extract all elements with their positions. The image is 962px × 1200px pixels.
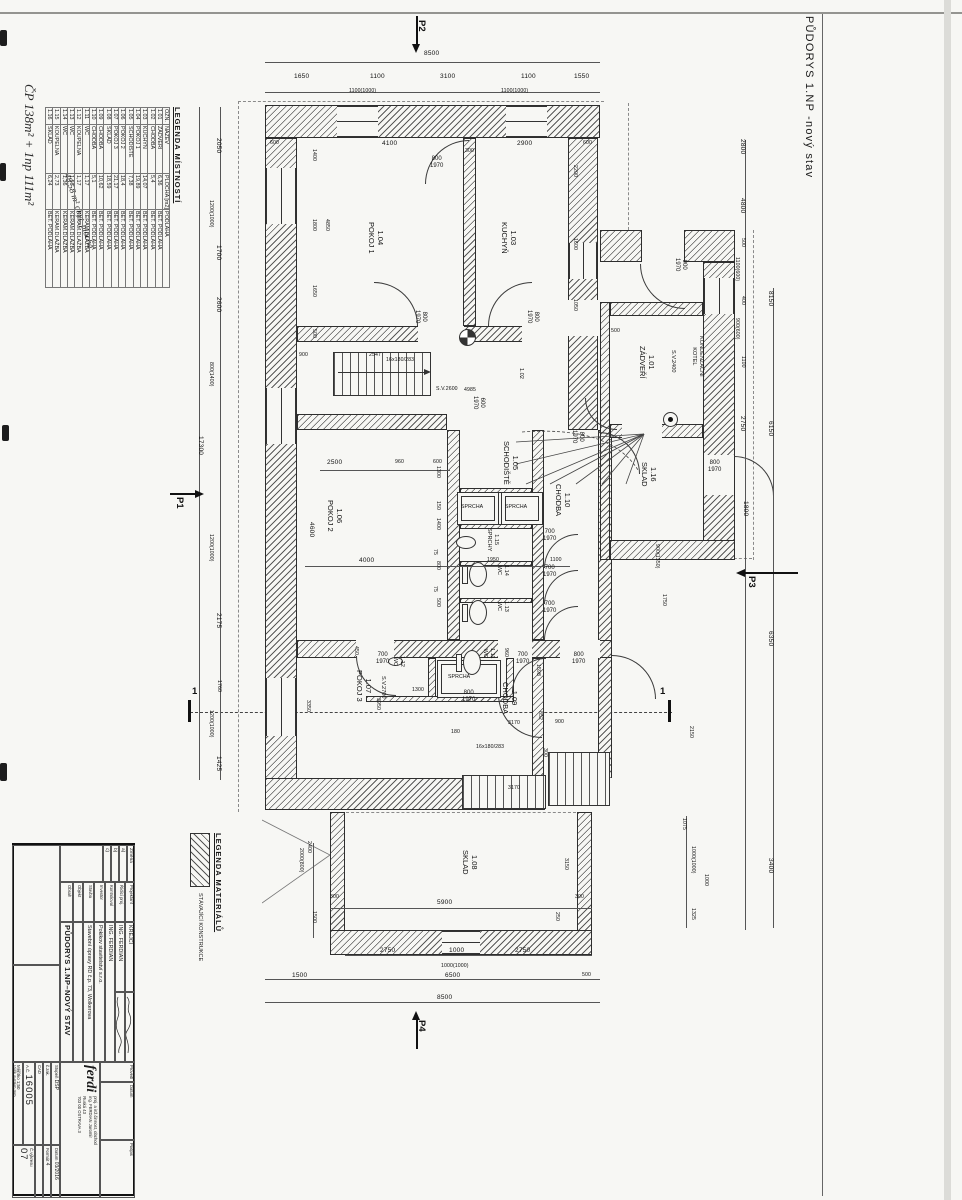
- door-size-label: 800 1970: [413, 310, 427, 323]
- dashed-outline: [238, 101, 239, 812]
- wall: [568, 138, 598, 430]
- wall: [447, 430, 460, 640]
- dim-label: 1100: [370, 73, 385, 80]
- door-size-label: 700 1970: [516, 652, 529, 666]
- legend-cell: 18,59: [104, 174, 111, 210]
- dim-label: 900(600): [734, 318, 740, 340]
- dim-label: 1300: [435, 466, 441, 478]
- page-edge-shade: [944, 0, 951, 1200]
- toilet: [469, 600, 487, 625]
- door-arc: [612, 655, 656, 699]
- dim-label: 300: [542, 748, 548, 757]
- legend-cell: 1.03: [141, 108, 148, 125]
- dim-label: 600: [270, 140, 279, 146]
- dim-label: 8500: [437, 994, 452, 1001]
- legend-cell: KERAM.DLAŽBA: [53, 210, 60, 288]
- section-arrowhead-p3: [736, 569, 745, 577]
- vysky-value: mm: [12, 1090, 17, 1097]
- dim-label: 1650: [294, 73, 309, 80]
- room-label-1-15: 1.15 SPRCHY: [486, 528, 499, 551]
- sheet-title-block: PŮDORYS 1.NP -nový stav: [797, 16, 819, 180]
- dim-label: 1800: [311, 219, 317, 231]
- dim-label: 900: [555, 719, 564, 725]
- legend-cell: 1.02: [148, 108, 155, 125]
- dim-label: 1100: [521, 73, 536, 80]
- dim-label: 2000(800): [298, 848, 304, 873]
- dim-label: 1500: [311, 911, 317, 923]
- stupen-label: Stupeň: [54, 1065, 59, 1078]
- legend-cell: CHODBA: [148, 125, 155, 174]
- investor-value: Pokikov stavitelství s.r.o.: [97, 925, 103, 1059]
- ridici-value: ING. FERDIAN: [117, 925, 123, 989]
- door-arc: [734, 456, 774, 496]
- legend-cell: SKLAD: [46, 125, 53, 174]
- shower-label: SPRCHA: [461, 504, 483, 510]
- dim-label: 1200(1000): [208, 200, 214, 228]
- section-mark-p2: P2: [416, 20, 427, 32]
- firm-line1: proj. a inž.činnost, obchod: [93, 1096, 98, 1145]
- legend-cell: POKOJ 2: [119, 125, 126, 174]
- legend-cell: 1.07: [111, 108, 118, 125]
- section-mark-1: 1: [192, 686, 197, 697]
- legend-cell: 1,56: [67, 174, 74, 210]
- stair-flight: [333, 352, 431, 396]
- legend-cell: 1.11: [82, 108, 89, 125]
- legend-row: 1.12KOUPELNA1,17KERAM.DLAŽBA: [75, 108, 82, 288]
- legend-cell: SCHODIŠTĚ: [126, 125, 133, 174]
- dim-label: 150: [435, 501, 441, 510]
- frame-line: [822, 14, 823, 1196]
- title-block: Změna a) b) c) Projektant KREJČÍ Řídící …: [12, 843, 135, 1196]
- legend-row: 1.13WC1,56KERAM.DLAŽBA: [67, 108, 74, 288]
- dashed-outline: [628, 103, 629, 230]
- legend-cell: 1.16: [46, 108, 53, 125]
- legend-cell: 1.12: [75, 108, 82, 125]
- dim-label: 2800: [739, 139, 746, 154]
- dim-label: 1400: [435, 518, 441, 530]
- legend-row: 1.14WC1,36KERAM.DLAŽBA: [60, 108, 67, 288]
- ridici-label: Řídící proj.: [118, 885, 123, 919]
- legend-cell: 5,4: [148, 174, 155, 210]
- dim-label: 6350: [767, 631, 774, 646]
- toilet: [462, 604, 468, 622]
- dim-label: 3100: [440, 73, 455, 80]
- legend-cell: 1.13: [67, 108, 74, 125]
- door-size-label: 600 1970: [471, 396, 485, 409]
- stair-arrow: [424, 369, 431, 375]
- section-tick-1: [188, 700, 191, 722]
- shower-label: SPRCHA: [505, 504, 527, 510]
- dim-label: 500: [435, 598, 441, 607]
- legend-row: 1.05SCHODIŠTĚ7,38BET. PODLAHA: [126, 108, 133, 288]
- stair-walkline: [338, 372, 426, 373]
- legend-row: 1.06POKOJ 218,4BET. PODLAHA: [119, 108, 126, 288]
- hatch-swatch: [190, 833, 210, 887]
- boiler-symbol-dot: [668, 417, 673, 422]
- dim-label: 1200(1000): [208, 710, 214, 738]
- dim-label: 3170: [508, 720, 520, 726]
- podpis-label: Podpis: [128, 1143, 133, 1195]
- room-legend-title: LEGENDA MÍSTNOSTÍ: [170, 107, 182, 287]
- stupen-value: DSP: [53, 1080, 59, 1090]
- dim-label: 1650: [311, 285, 317, 297]
- legend-header: OZN.: [163, 108, 170, 125]
- legend-cell: 18,4: [119, 174, 126, 210]
- dim-label: 1600: [572, 238, 578, 250]
- dim-label: 1075: [681, 818, 687, 830]
- dim-line: [320, 470, 450, 471]
- dim-line: [686, 816, 687, 928]
- room-label-1-05: 1.05 SCHODIŠTĚ: [501, 441, 520, 485]
- datum2-value: 03/2016: [53, 1162, 59, 1180]
- dim-label: 400: [740, 296, 746, 305]
- door-size-label: 800 1970: [570, 430, 584, 443]
- dim-label: 4850: [324, 219, 330, 231]
- door-size-label: 700 1970: [543, 529, 556, 543]
- scan-edge-line: [0, 12, 962, 14]
- dim-label: 960: [503, 648, 509, 657]
- dashed-outline: [346, 812, 576, 813]
- room-label-1-10: 1.10 CHODBA: [553, 484, 572, 516]
- legend-cell: 1.14: [60, 108, 67, 125]
- legend-row: 1.04POKOJ 119,89BET. PODLAHA: [133, 108, 140, 288]
- legend-cell: KERAM.DLAŽBA: [60, 210, 67, 288]
- firm-logo: ferdi: [82, 1065, 98, 1092]
- dim-label: 1550: [574, 73, 589, 80]
- legend-cell: BET. PODLAHA: [119, 210, 126, 288]
- dim-line: [265, 979, 600, 980]
- section-mark-p4: P4: [416, 1020, 427, 1032]
- room-label-1-02: 1.02: [517, 368, 524, 379]
- legend-cell: CHODBA: [89, 125, 96, 174]
- dim-label: 1425: [215, 756, 222, 771]
- legend-cell: 1.08: [104, 108, 111, 125]
- drawing-sheet: PŮDORYS 1.NP -nový stav ČP 138m² + 1np 1…: [0, 0, 962, 1200]
- dim-label: 75: [432, 586, 438, 592]
- legend-row: 1.15KOUPELNA2,73KERAM.DLAŽBA: [53, 108, 60, 288]
- legend-row: 1.03KUCHYŇ14,07BET. PODLAHA: [141, 108, 148, 288]
- ceiling-height-label: S.V.2600: [436, 386, 458, 392]
- firm-address: proj. a inž.činnost, obchod ing. FERDIAN…: [77, 1096, 98, 1145]
- section-arrow-p1: [170, 493, 196, 495]
- room-label-1-07: 1.07 POKOJ 3: [354, 670, 373, 702]
- dim-label: 300: [575, 894, 584, 900]
- stavba-value: Stavební úpravy RD č.p. 73, Wolkerova: [86, 925, 92, 1059]
- provedl-label: Provedl: [128, 1065, 133, 1079]
- window: [266, 678, 296, 736]
- legend-cell: 2,73: [53, 174, 60, 210]
- dim-label: 4600: [308, 522, 315, 537]
- legend-cell: WC: [82, 125, 89, 174]
- dim-label: 3400: [767, 858, 774, 873]
- door-size-label: 900 1970: [673, 258, 687, 271]
- dim-label: 1100: [740, 356, 746, 368]
- dim-label: 2050: [215, 138, 222, 153]
- legend-cell: 1.05: [126, 108, 133, 125]
- legend-row: 1.16SKLAD6,24BET. PODLAHA: [46, 108, 53, 288]
- dim-label: 1000: [703, 874, 709, 886]
- door-size-label: 800 1970: [462, 690, 475, 704]
- legend-cell: BET. PODLAHA: [46, 210, 53, 288]
- window: [266, 168, 296, 224]
- dim-label: 4985: [464, 387, 476, 393]
- section-arrow-p3: [744, 572, 798, 574]
- legend-cell: BET. PODLAHA: [133, 210, 140, 288]
- dim-line: [773, 288, 774, 928]
- legend-cell: SKLAD: [104, 125, 111, 174]
- dim-label: 500: [611, 328, 620, 334]
- dim-label: 2750: [515, 947, 530, 954]
- scan-mark: [0, 30, 7, 46]
- legend-cell: 6,24: [46, 174, 53, 210]
- legend-row: 1.07POKOJ 321,17BET. PODLAHA: [111, 108, 118, 288]
- scan-mark: [2, 425, 9, 441]
- dim-label: 3950: [375, 698, 381, 710]
- toilet: [463, 650, 481, 675]
- dim-label: 1598: [535, 664, 541, 676]
- dim-label: 2900: [517, 140, 532, 147]
- legend-cell: BET. PODLAHA: [126, 210, 133, 288]
- legend-cell: 19,89: [133, 174, 140, 210]
- dim-label: 250: [554, 912, 560, 921]
- door-opening: [418, 326, 464, 342]
- stavba-label: Stavba: [87, 885, 92, 919]
- room-label-1-09: 1.09 CHODBA: [500, 682, 519, 714]
- format-label: Formát: [45, 1148, 50, 1161]
- legend-header: PODLAHA: [163, 210, 170, 288]
- legend-cell: ZÁDVEŘÍ: [155, 125, 162, 174]
- datum-label: Datum: [128, 1085, 133, 1137]
- dim-label: 1950: [487, 557, 499, 563]
- vysky-label: Výšk.systém: [12, 1065, 17, 1089]
- scan-mark: [0, 763, 7, 781]
- ceiling-height-label: S.V.2400: [669, 350, 676, 373]
- room-label-1-04: 1.04 POKOJ 1: [366, 222, 385, 254]
- stair-flight: [548, 752, 610, 806]
- dim-label: 1300: [412, 687, 424, 693]
- zakazka-label: č.zak.: [45, 1065, 50, 1076]
- dim-label: 1500: [292, 972, 307, 979]
- legend-cell: KERAM.DLAŽBA: [67, 210, 74, 288]
- projektant-label: Projektant: [128, 885, 133, 919]
- legend-row: 1.11WC1,17KERAM.DLAŽBA: [82, 108, 89, 288]
- dim-label: 2500: [327, 459, 342, 466]
- legend-cell: 1,17: [75, 174, 82, 210]
- legend-cell: 1.10: [89, 108, 96, 125]
- zmena-label: Změna: [128, 848, 133, 863]
- dim-label: 500: [740, 238, 746, 247]
- dim-label: 1700: [215, 245, 222, 260]
- dim-label: 600: [583, 140, 592, 146]
- dim-label: 1000: [449, 947, 464, 954]
- dim-label: 852: [537, 711, 543, 720]
- wall: [265, 105, 600, 138]
- stair-label: 16x180/283: [476, 744, 504, 750]
- wall: [684, 230, 735, 262]
- wall: [428, 658, 436, 698]
- room-label-1-16: 1.16 SKLAD: [639, 462, 658, 487]
- dim-label: 1750: [661, 594, 667, 606]
- wall: [330, 812, 345, 934]
- dim-label: 1050: [572, 299, 578, 311]
- section-arrowhead-p1: [195, 490, 204, 498]
- legend-cell: 14,07: [141, 174, 148, 210]
- dim-label: 1400: [311, 149, 317, 161]
- dim-line: [745, 140, 746, 930]
- materials-legend: LEGENDA MATERIÁLŮ STÁVAJÍCÍ KONSTRUKCE: [183, 833, 223, 963]
- dim-label: 2150: [688, 726, 694, 738]
- wall: [610, 302, 703, 316]
- legend-cell: 7,38: [126, 174, 133, 210]
- door-size-label: 800 1970: [572, 652, 585, 666]
- legend-cell: BET. PODLAHA: [141, 210, 148, 288]
- dashed-outline: [753, 230, 754, 560]
- legend-cell: KUCHYŇ: [141, 125, 148, 174]
- window: [337, 106, 378, 137]
- obsah-label: Obsah: [66, 885, 71, 919]
- signature-scribble: [115, 995, 123, 1055]
- legend-row: 1.02CHODBA5,4BET. PODLAHA: [148, 108, 155, 288]
- legend-cell: 1.15: [53, 108, 60, 125]
- room-label-1-06: 1.06 POKOJ 2: [325, 500, 344, 532]
- ac-value: 16005: [23, 1075, 34, 1106]
- dim-label: 1760: [216, 680, 222, 692]
- room-label-1-03: 1.03 KUCHYŇ: [499, 222, 518, 254]
- dim-label: 500: [582, 972, 591, 978]
- dim-label: 2750: [739, 416, 746, 431]
- dim-label: 500: [311, 329, 317, 338]
- room-legend: LEGENDA MÍSTNOSTÍ OZN. NÁZEV PLOCHA [m2]…: [33, 107, 182, 287]
- legend-header-row: OZN. NÁZEV PLOCHA [m2] PODLAHA: [163, 108, 170, 288]
- dim-label: 2400: [306, 841, 312, 853]
- shower-label: SPRCHA: [448, 674, 470, 680]
- dim-label: 3350: [305, 700, 311, 712]
- firm-line4: 703 00 OSTRAVA 3: [77, 1096, 82, 1145]
- dim-label: 300: [330, 894, 339, 900]
- legend-row: 1.01ZÁDVEŘÍ6,36BET. PODLAHA: [155, 108, 162, 288]
- dim-label: 1100(1000): [349, 88, 376, 94]
- stair-label: 16x180/283: [386, 357, 414, 363]
- wall: [297, 414, 447, 430]
- investor-label: Investor: [98, 885, 103, 919]
- legend-header: PLOCHA [m2]: [163, 174, 170, 210]
- legend-rows: 1.01ZÁDVEŘÍ6,36BET. PODLAHA1.02CHODBA5,4…: [46, 108, 163, 288]
- dim-label: 180: [451, 729, 460, 735]
- toilet: [456, 654, 462, 672]
- opening-mark: [262, 818, 332, 908]
- legend-cell: BET. PODLAHA: [148, 210, 155, 288]
- dim-label: 960: [395, 459, 404, 465]
- dim-label: 600: [433, 459, 442, 465]
- window: [704, 278, 734, 314]
- dim-label: 2600: [215, 297, 222, 312]
- legend-cell: BET. PODLAHA: [97, 210, 104, 288]
- door-size-label: 700 1970: [543, 601, 556, 615]
- legend-cell: BET. PODLAHA: [104, 210, 111, 288]
- door-size-label: 800 1970: [708, 460, 721, 474]
- dim-label: 1000(1000): [690, 846, 696, 874]
- format-value: 4: [44, 1163, 50, 1166]
- legend-cell: BET. PODLAHA: [111, 210, 118, 288]
- legend-row: 1.10CHODBA5,1BET. PODLAHA: [89, 108, 96, 288]
- section-mark-1: 1: [660, 686, 665, 697]
- dim-label: 6500: [445, 972, 460, 979]
- dim-label: 300: [465, 148, 474, 154]
- projektant-value: KREJČÍ: [127, 925, 133, 989]
- dim-label: 1800: [742, 501, 749, 516]
- materials-legend-title: LEGENDA MATERIÁLŮ: [214, 833, 223, 963]
- legend-row: 1.09CHODBA10,62BET. PODLAHA: [97, 108, 104, 288]
- legend-cell: CHODBA: [97, 125, 104, 174]
- legend-cell: WC: [67, 125, 74, 174]
- dim-label: 2750: [380, 947, 395, 954]
- zmena-row-c: c): [104, 848, 109, 852]
- legend-cell: WC: [60, 125, 67, 174]
- dim-label: 4800: [739, 198, 746, 213]
- legend-cell: 10,62: [97, 174, 104, 210]
- legend-cell: 21,17: [111, 174, 118, 210]
- dim-line: [313, 843, 314, 938]
- ceiling-height-label: S.V.2700: [379, 676, 386, 699]
- dim-line: [345, 955, 592, 956]
- room-label-1-12: 1.12 WC: [392, 656, 405, 667]
- legend-header: NÁZEV: [163, 125, 170, 174]
- section-mark-p1: P1: [174, 497, 185, 509]
- legend-cell: POKOJ 1: [133, 125, 140, 174]
- dim-line: [265, 92, 600, 93]
- door-size-label: 800 1970: [525, 310, 539, 323]
- dim-label: 900(1350): [654, 544, 660, 569]
- wall: [600, 230, 642, 262]
- dim-label: 1100: [550, 557, 562, 563]
- dim-label: 4100: [382, 140, 397, 147]
- legend-cell: KERAM.DLAŽBA: [75, 210, 82, 288]
- dim-label: 450: [353, 646, 359, 655]
- stair-flight: [462, 775, 546, 809]
- door-size-label: 700 1970: [376, 652, 389, 666]
- dim-label: 800(1400): [208, 362, 214, 387]
- room-legend-table: OZN. NÁZEV PLOCHA [m2] PODLAHA 1.01ZÁDVE…: [45, 107, 170, 288]
- window: [266, 388, 296, 444]
- room-label-1-13: 1.13 WC: [496, 601, 509, 612]
- dim-label: 17300: [197, 436, 204, 455]
- obsah-value: PŮDORYS 1.NP–NOVÝ STAV: [63, 925, 72, 1036]
- door-size-label: 700 1970: [543, 565, 556, 579]
- room-label-1-08: 1.08 SKLAD: [460, 850, 479, 875]
- dim-label: 75: [432, 549, 438, 555]
- dim-line: [330, 908, 592, 909]
- room-label-1-14: 1.14 WC: [496, 565, 509, 576]
- dim-label: 1200(1000): [208, 534, 214, 562]
- toilet: [462, 566, 468, 584]
- section-tick-1: [668, 700, 671, 722]
- legend-cell: 1.06: [119, 108, 126, 125]
- legend-cell: BET. PODLAHA: [89, 210, 96, 288]
- dim-label: 8150: [767, 291, 774, 306]
- dim-label: 2175: [215, 613, 222, 628]
- legend-cell: KOUPELNA: [53, 125, 60, 174]
- dim-label: 5900: [437, 899, 452, 906]
- legend-cell: POKOJ 3: [111, 125, 118, 174]
- objekt-label: Objekt: [76, 885, 81, 919]
- signature-scribble: [125, 995, 133, 1055]
- page-title: PŮDORYS 1.NP -nový stav: [803, 16, 815, 178]
- sink: [456, 536, 476, 549]
- dim-label: 1100(1000): [501, 88, 528, 94]
- section-arrowhead-p4: [412, 1011, 420, 1020]
- dashed-outline: [238, 101, 604, 102]
- legend-cell: 1,36: [60, 174, 67, 210]
